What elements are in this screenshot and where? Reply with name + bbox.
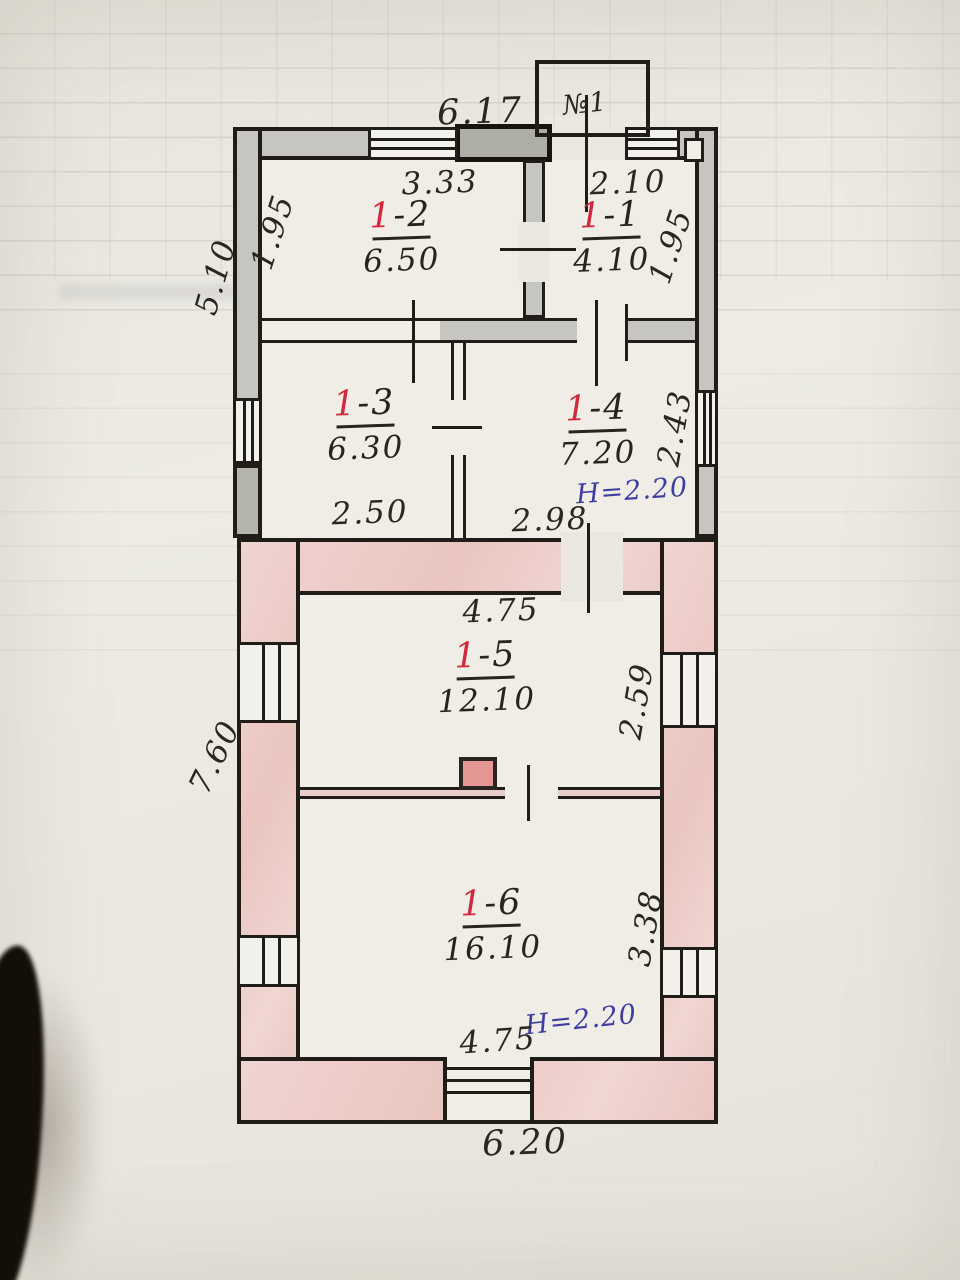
interior-wall-gray-fill [440,321,695,340]
door-tick-room1-room2 [500,248,576,251]
floor-plan-photo: 6.17 №1 3.33 2.10 1.95 1.95 5.10 2.50 2.… [0,0,960,1280]
entrance-steps [443,1057,534,1120]
room-1-3-label: 1-3 6.30 [325,382,405,468]
room-1-2-label: 1-2 6.50 [361,194,441,280]
pink-wall-right [660,538,718,1124]
room-1-5-label: 1-5 12.10 [435,634,537,720]
room-1-5-area: 12.10 [437,681,537,720]
window-room4-right [695,390,718,467]
door-tick-room3 [412,300,415,383]
room-1-3-area: 6.30 [327,429,405,468]
window-room6-left [237,935,300,987]
dim-overall-top: 6.17 [436,91,523,134]
room-1-4-label: 1-4 7.20 [557,387,637,473]
window-room6-right [660,947,718,998]
door-opening-room1-room2 [519,222,549,282]
pink-wall-top-band [237,538,718,595]
door-opening-room5-room6 [505,784,558,802]
room-1-2-area: 6.50 [363,241,441,280]
porch-label: №1 [561,86,609,122]
door-tick-room4-a [595,300,598,386]
window-room3-left [233,398,262,464]
room-1-1-area: 4.10 [573,241,651,280]
window-room5-right [660,652,718,728]
door-tick-room5-room6 [527,765,530,821]
pink-wall-left [237,538,300,1124]
left-wall-solid-block [233,464,262,538]
dim-room6-width: 4.75 [458,1020,537,1061]
room-1-6-label: 1-6 16.10 [441,882,543,968]
door-tick-room4-b [625,304,628,361]
door-opening-room4 [577,318,627,343]
corner-post-detail [684,138,704,162]
dim-room3-width: 2.50 [331,494,409,533]
stove [459,757,497,790]
dim-room5-width: 4.75 [462,592,540,631]
room-1-6-area: 16.10 [443,929,543,968]
window-room5-left [237,642,300,723]
room-1-1-label: 1-1 4.10 [571,194,651,280]
room-1-4-area: 7.20 [559,434,637,473]
door-tick-room3-room4 [432,426,482,429]
outer-wall-right-upper [695,127,718,538]
door-opening-room4-room5 [561,532,623,601]
dim-overall-bottom: 6.20 [481,1122,568,1165]
